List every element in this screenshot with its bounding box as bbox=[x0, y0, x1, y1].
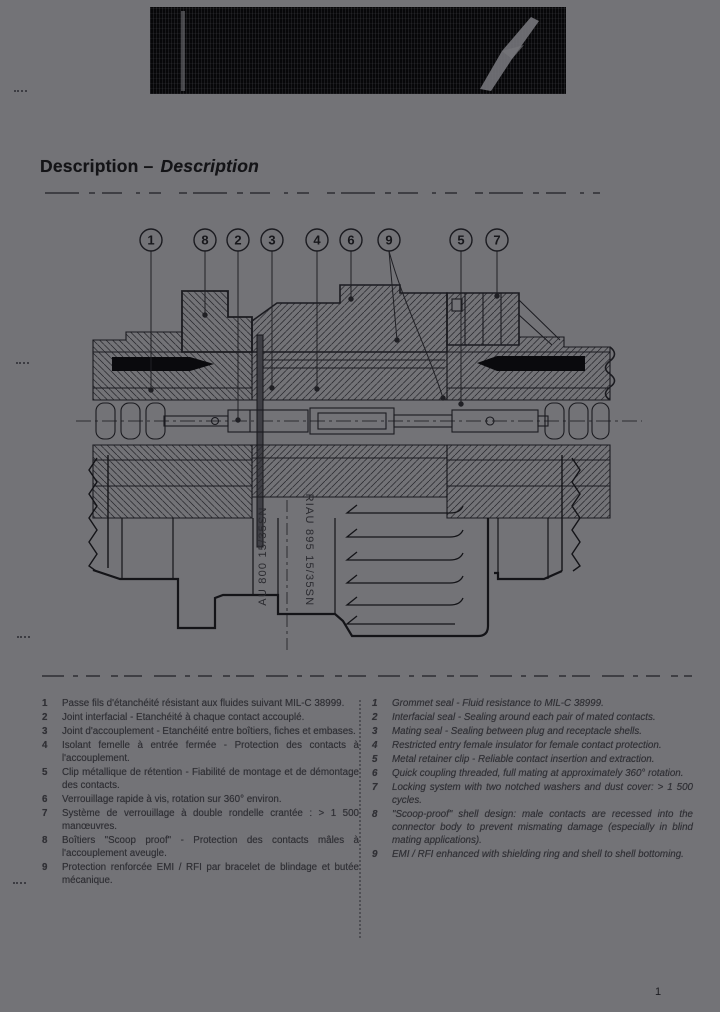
page-title-separator: – bbox=[144, 156, 159, 176]
legend-item-text: Metal retainer clip - Reliable contact i… bbox=[392, 754, 654, 765]
svg-text:9: 9 bbox=[385, 233, 392, 248]
svg-text:7: 7 bbox=[493, 233, 500, 248]
legend-item-number: 4 bbox=[42, 739, 47, 752]
sectioned-shells bbox=[93, 285, 615, 400]
legend-french: 1Passe fils d'étanchéité résistant aux f… bbox=[42, 697, 359, 888]
legend-item: 1Grommet seal - Fluid resistance to MIL-… bbox=[372, 697, 693, 710]
column-divider bbox=[359, 700, 361, 938]
legend-item-number: 2 bbox=[372, 711, 377, 724]
legend-item-text: Mating seal - Sealing between plug and r… bbox=[392, 726, 642, 737]
callout-1: 1 bbox=[140, 229, 162, 251]
legend-item: 5Clip métallique de rétention - Fiabilit… bbox=[42, 766, 359, 792]
callout-9: 9 bbox=[378, 229, 400, 251]
svg-text:4: 4 bbox=[313, 233, 321, 248]
legend-item-text: Joint d'accouplement - Etanchéité entre … bbox=[62, 726, 356, 737]
page-number: 1 bbox=[655, 986, 661, 998]
legend-item: 6Quick coupling threaded, full mating at… bbox=[372, 767, 693, 780]
legend-item: 2Joint interfacial - Etanchéité à chaque… bbox=[42, 711, 359, 724]
legend-item-text: Protection renforcée EMI / RFI par brace… bbox=[62, 862, 359, 886]
legend-item-number: 3 bbox=[372, 725, 377, 738]
page-title: Description – Description bbox=[40, 156, 259, 177]
connector-cross-section-diagram: AU 800 15/35SN RIAU 895 15/35SN 18234695… bbox=[0, 205, 720, 660]
legend-item-text: Locking system with two notched washers … bbox=[392, 782, 693, 806]
legend-item-text: Joint interfacial - Etanchéité à chaque … bbox=[62, 712, 304, 723]
legend-item-text: Quick coupling threaded, full mating at … bbox=[392, 768, 683, 779]
legend-item-number: 7 bbox=[372, 781, 377, 794]
scan-speck bbox=[16, 362, 29, 364]
scan-speck bbox=[13, 882, 26, 884]
legend-item: 9Protection renforcée EMI / RFI par brac… bbox=[42, 861, 359, 887]
legend-item-number: 5 bbox=[42, 766, 47, 779]
svg-text:2: 2 bbox=[234, 233, 241, 248]
legend-item-text: Verrouillage rapide à vis, rotation sur … bbox=[62, 794, 282, 805]
legend-item: 4Restricted entry female insulator for f… bbox=[372, 739, 693, 752]
legend-item: 5Metal retainer clip - Reliable contact … bbox=[372, 753, 693, 766]
logo-swoosh-icon bbox=[150, 7, 566, 94]
legend-item-text: EMI / RFI enhanced with shielding ring a… bbox=[392, 849, 684, 860]
legend-item-text: "Scoop-proof" shell design: male contact… bbox=[392, 809, 693, 846]
callout-5: 5 bbox=[450, 229, 472, 251]
legend-item-text: Restricted entry female insulator for fe… bbox=[392, 740, 662, 751]
legend-item: 8Boîtiers "Scoop proof" - Protection des… bbox=[42, 834, 359, 860]
legend-item-text: Clip métallique de rétention - Fiabilité… bbox=[62, 767, 359, 791]
scan-speck bbox=[14, 90, 27, 92]
callout-4: 4 bbox=[306, 229, 328, 251]
legend-item-number: 8 bbox=[42, 834, 47, 847]
legend-item-number: 7 bbox=[42, 807, 47, 820]
callout-6: 6 bbox=[340, 229, 362, 251]
legend-item-text: Interfacial seal - Sealing around each p… bbox=[392, 712, 656, 723]
legend-item: 9EMI / RFI enhanced with shielding ring … bbox=[372, 848, 693, 861]
legend-item-number: 9 bbox=[42, 861, 47, 874]
legend-item-number: 8 bbox=[372, 808, 377, 821]
legend-item-number: 1 bbox=[372, 697, 377, 710]
callout-2: 2 bbox=[227, 229, 249, 251]
legend-item-number: 5 bbox=[372, 753, 377, 766]
svg-text:5: 5 bbox=[457, 233, 464, 248]
callout-balloons: 182346957 bbox=[140, 229, 508, 251]
legend-item-number: 1 bbox=[42, 697, 47, 710]
legend-item-number: 9 bbox=[372, 848, 377, 861]
callout-7: 7 bbox=[486, 229, 508, 251]
legend-item: 1Passe fils d'étanchéité résistant aux f… bbox=[42, 697, 359, 710]
svg-text:8: 8 bbox=[201, 233, 208, 248]
svg-text:1: 1 bbox=[147, 233, 154, 248]
page-title-italic: Description bbox=[161, 156, 259, 176]
legend-item: 6Verrouillage rapide à vis, rotation sur… bbox=[42, 793, 359, 806]
legend-item: 3Mating seal - Sealing between plug and … bbox=[372, 725, 693, 738]
part-marking-right: RIAU 895 15/35SN bbox=[303, 494, 315, 607]
legend-item-text: Isolant femelle à entrée fermée - Protec… bbox=[62, 740, 359, 764]
legend-item-number: 3 bbox=[42, 725, 47, 738]
legend-item: 3Joint d'accouplement - Etanchéité entre… bbox=[42, 725, 359, 738]
legend-item-text: Boîtiers "Scoop proof" - Protection des … bbox=[62, 835, 359, 859]
svg-text:3: 3 bbox=[268, 233, 275, 248]
legend-item-text: Système de verrouillage à double rondell… bbox=[62, 808, 359, 832]
legend-item: 4Isolant femelle à entrée fermée - Prote… bbox=[42, 739, 359, 765]
legend-item: 7Système de verrouillage à double rondel… bbox=[42, 807, 359, 833]
scan-speck bbox=[17, 636, 30, 638]
header-logo-band bbox=[150, 7, 566, 94]
legend-item-number: 6 bbox=[42, 793, 47, 806]
page-title-roman: Description bbox=[40, 156, 138, 176]
legend-item: 2Interfacial seal - Sealing around each … bbox=[372, 711, 693, 724]
legend-item-number: 6 bbox=[372, 767, 377, 780]
legend-item-number: 2 bbox=[42, 711, 47, 724]
lower-section-bands bbox=[93, 445, 610, 518]
legend-item-text: Grommet seal - Fluid resistance to MIL-C… bbox=[392, 698, 604, 709]
part-marking-left: AU 800 15/35SN bbox=[257, 506, 269, 605]
callout-3: 3 bbox=[261, 229, 283, 251]
legend-english: 1Grommet seal - Fluid resistance to MIL-… bbox=[372, 697, 693, 862]
legend-item: 7Locking system with two notched washers… bbox=[372, 781, 693, 807]
callout-8: 8 bbox=[194, 229, 216, 251]
legend-item-text: Passe fils d'étanchéité résistant aux fl… bbox=[62, 698, 344, 709]
legend-item-number: 4 bbox=[372, 739, 377, 752]
svg-text:6: 6 bbox=[347, 233, 354, 248]
legend-item: 8"Scoop-proof" shell design: male contac… bbox=[372, 808, 693, 847]
document-page: Description – Description bbox=[0, 0, 720, 1012]
